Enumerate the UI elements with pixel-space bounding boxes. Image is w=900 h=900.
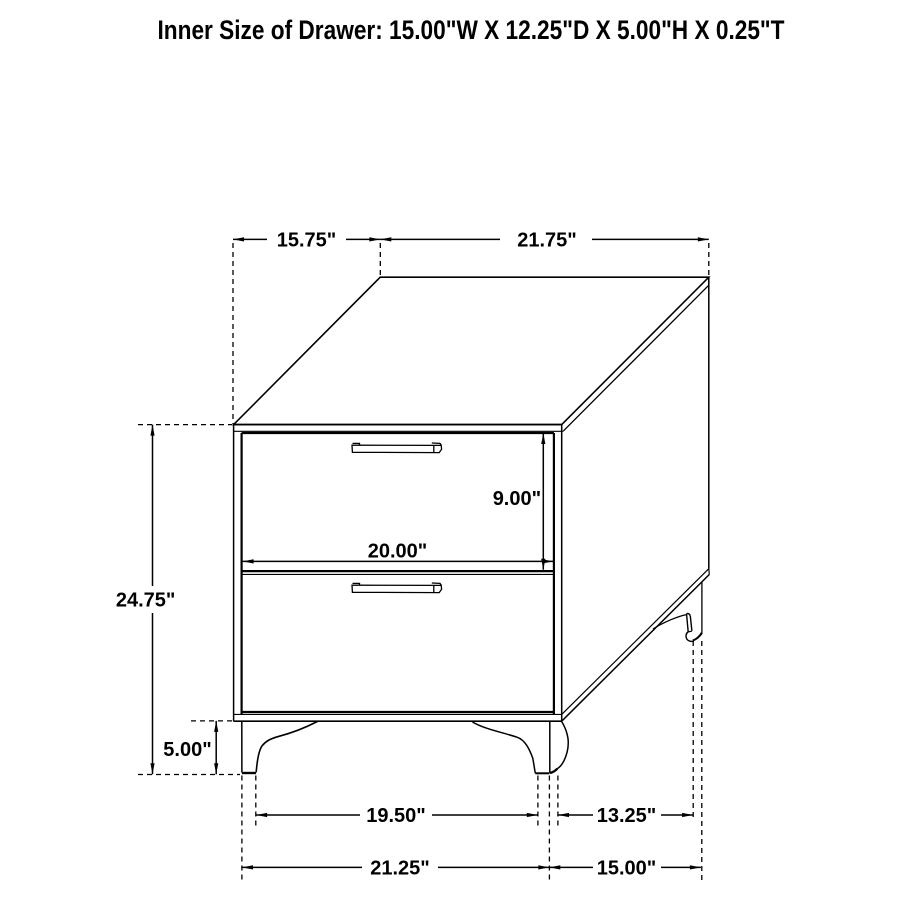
svg-text:20.00": 20.00": [368, 540, 428, 562]
svg-text:21.25": 21.25": [370, 857, 430, 879]
svg-text:9.00": 9.00": [493, 488, 541, 510]
svg-text:24.75": 24.75": [116, 589, 176, 611]
svg-text:13.25": 13.25": [597, 805, 657, 827]
svg-text:19.50": 19.50": [366, 805, 426, 827]
svg-text:15.75": 15.75": [277, 229, 337, 251]
svg-text:21.75": 21.75": [517, 229, 577, 251]
svg-text:Inner Size of Drawer: 15.00"W: Inner Size of Drawer: 15.00"W X 12.25"D …: [158, 15, 785, 45]
svg-text:5.00": 5.00": [163, 739, 211, 761]
svg-text:15.00": 15.00": [597, 857, 657, 879]
